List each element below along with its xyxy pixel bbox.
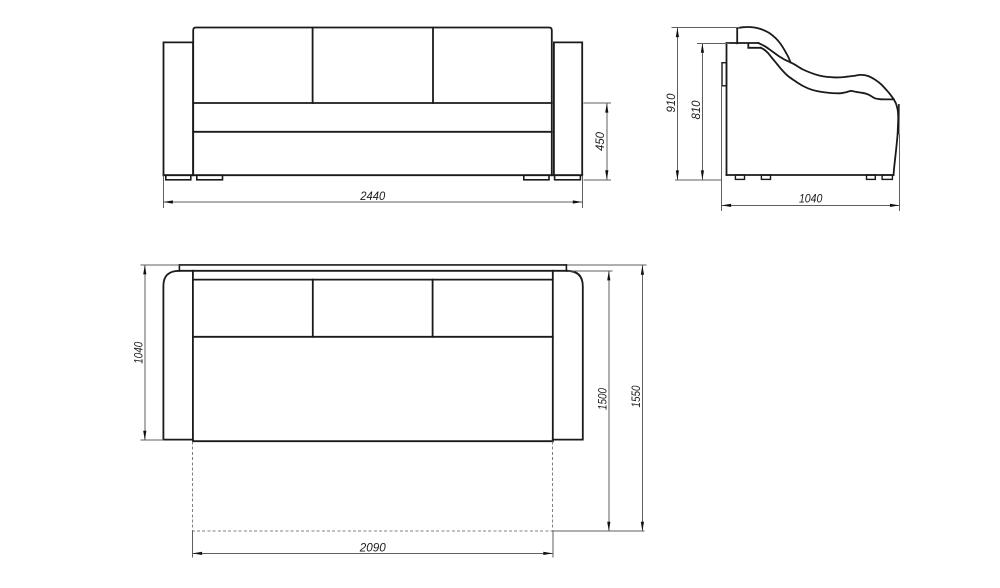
- svg-text:810: 810: [689, 100, 703, 119]
- svg-text:450: 450: [593, 132, 607, 151]
- svg-text:2090: 2090: [359, 541, 386, 555]
- svg-text:910: 910: [664, 93, 678, 112]
- svg-text:1040: 1040: [132, 342, 146, 364]
- svg-text:1500: 1500: [595, 388, 609, 410]
- svg-text:2440: 2440: [359, 189, 385, 203]
- svg-text:1040: 1040: [799, 191, 823, 205]
- svg-text:1550: 1550: [629, 385, 643, 407]
